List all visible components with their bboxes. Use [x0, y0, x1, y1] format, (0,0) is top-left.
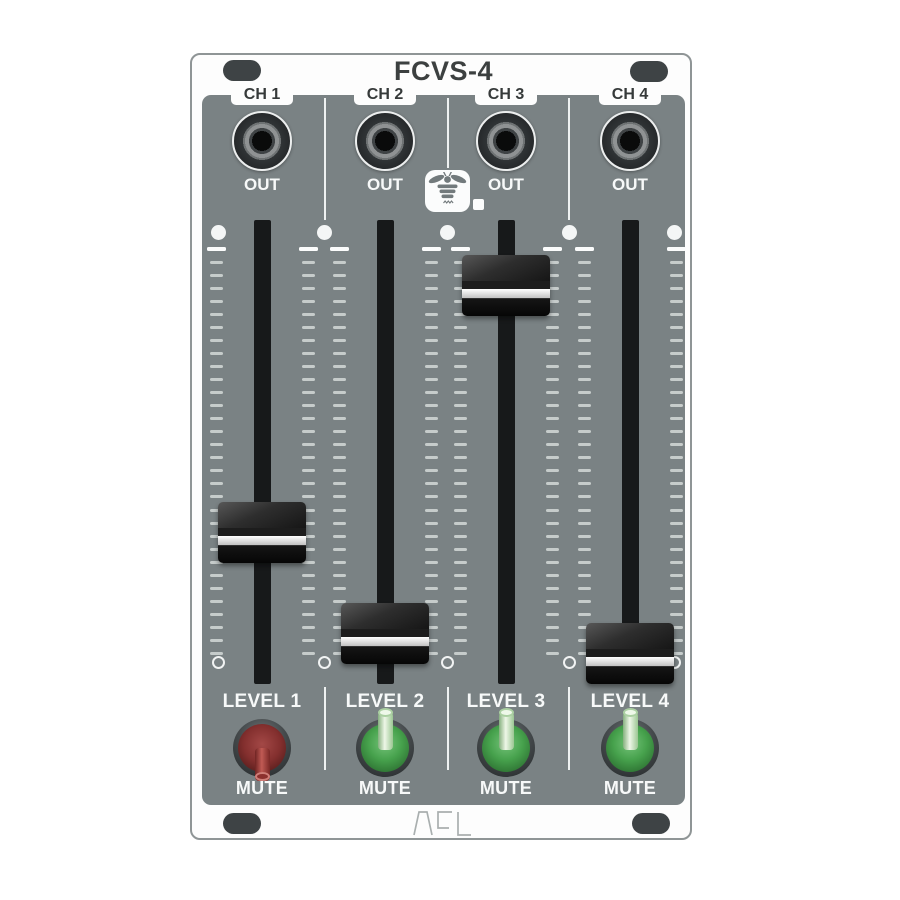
- mute-toggle-lever-tip: [378, 708, 393, 717]
- fader-scale-tick: [425, 391, 438, 394]
- fader-handle-cap-band: [218, 528, 306, 536]
- fader-scale-tick: [299, 247, 318, 251]
- fader-scale-tick: [578, 430, 591, 433]
- output-jack-label: OUT: [217, 175, 307, 195]
- fader-scale-tick: [670, 300, 683, 303]
- fader-scale-tick: [302, 313, 315, 316]
- fader-level-label: LEVEL 1: [202, 691, 322, 713]
- fader-scale-tick: [454, 339, 467, 342]
- fader-scale-tick: [210, 391, 223, 394]
- fader-handle-cap-band: [462, 281, 550, 289]
- fader-scale-tick: [425, 378, 438, 381]
- fader-scale-tick: [670, 326, 683, 329]
- fader-scale-tick: [454, 535, 467, 538]
- fader-scale-tick: [454, 352, 467, 355]
- fader-scale-tick: [670, 587, 683, 590]
- fader-scale-tick: [578, 339, 591, 342]
- fader-scale-tick: [333, 456, 346, 459]
- fader-scale-tick: [578, 404, 591, 407]
- fader-scale-tick: [454, 430, 467, 433]
- fader-scale-tick: [425, 587, 438, 590]
- fcvs-4-eurorack-module: FCVS-4 CH 1OUTLEVEL: [0, 0, 900, 900]
- fader-scale-tick: [454, 574, 467, 577]
- fader-scale-tick: [425, 469, 438, 472]
- fader-scale-tick: [302, 639, 315, 642]
- fader-scale-tick: [546, 391, 559, 394]
- fader-scale-tick: [546, 587, 559, 590]
- fader-scale-tick: [210, 639, 223, 642]
- fader-scale-tick: [670, 404, 683, 407]
- fader-scale-tick: [667, 247, 686, 251]
- fader-handle[interactable]: [462, 255, 550, 316]
- fader-scale-tick: [210, 574, 223, 577]
- fader-scale-tick: [425, 495, 438, 498]
- fader-scale-tick: [670, 352, 683, 355]
- fader-scale-tick: [302, 326, 315, 329]
- fader-scale-tick: [454, 404, 467, 407]
- fader-scale-tick: [333, 417, 346, 420]
- fader-scale-tick: [302, 352, 315, 355]
- mute-label: MUTE: [212, 778, 312, 799]
- output-jack-label: OUT: [461, 175, 551, 195]
- fader-scale-tick: [210, 626, 223, 629]
- fader-scale-tick: [425, 456, 438, 459]
- fader-scale-tick: [546, 574, 559, 577]
- fader-scale-tick: [210, 404, 223, 407]
- fader-scale-tick: [454, 456, 467, 459]
- fader-scale-tick: [425, 261, 438, 264]
- fader-scale-tick: [333, 352, 346, 355]
- fader-scale-tick: [670, 378, 683, 381]
- mute-toggle-lever-tip: [623, 708, 638, 717]
- fader-track[interactable]: [254, 220, 271, 684]
- mute-toggle-lever-tip: [499, 708, 514, 717]
- fader-scale-tick: [670, 430, 683, 433]
- mute-label: MUTE: [456, 778, 556, 799]
- fader-scale-tick: [333, 261, 346, 264]
- fader-scale-tick: [333, 300, 346, 303]
- fader-scale-tick: [333, 535, 346, 538]
- fader-scale-tick: [333, 561, 346, 564]
- fader-scale-tick: [302, 469, 315, 472]
- fader-scale-tick: [454, 391, 467, 394]
- fader-scale-tick: [575, 247, 594, 251]
- fader-scale-tick: [210, 587, 223, 590]
- fader-scale-tick: [425, 313, 438, 316]
- fader-scale-tick: [454, 548, 467, 551]
- fader-scale-tick: [425, 522, 438, 525]
- fader-scale-tick: [425, 535, 438, 538]
- channel-divider-line: [447, 98, 449, 168]
- fader-scale-tick: [333, 274, 346, 277]
- bee-logo-square-accent: [473, 199, 484, 210]
- acl-brand-logo: [412, 809, 472, 842]
- fader-scale-tick: [670, 339, 683, 342]
- fader-scale-tick: [543, 247, 562, 251]
- fader-scale-tick: [578, 274, 591, 277]
- fader-handle-cap-bot: [586, 666, 674, 684]
- fader-scale-tick: [302, 417, 315, 420]
- fader-scale-tick: [546, 443, 559, 446]
- mute-toggle-lever[interactable]: [623, 712, 638, 750]
- fader-scale-tick: [546, 456, 559, 459]
- fader-scale-tick: [546, 535, 559, 538]
- fader-scale-tick: [302, 587, 315, 590]
- fader-scale-tick: [454, 469, 467, 472]
- fader-scale-tick: [210, 300, 223, 303]
- fader-scale-tick: [425, 404, 438, 407]
- fader-scale-tick: [210, 482, 223, 485]
- fader-scale-tick: [546, 339, 559, 342]
- fader-scale-tick: [454, 509, 467, 512]
- fader-scale-tick: [302, 287, 315, 290]
- fader-scale-tick: [210, 600, 223, 603]
- output-jack[interactable]: [355, 111, 415, 171]
- fader-scale-tick: [578, 261, 591, 264]
- fader-scale-tick: [670, 274, 683, 277]
- fader-scale-tick: [425, 509, 438, 512]
- fader-scale-tick: [207, 247, 226, 251]
- fader-scale-tick: [578, 561, 591, 564]
- fader-scale-tick: [333, 430, 346, 433]
- fader-scale-tick: [578, 391, 591, 394]
- fader-scale-tick: [546, 600, 559, 603]
- fader-scale-tick: [425, 339, 438, 342]
- fader-scale-tick: [302, 430, 315, 433]
- fader-handle-cap-top: [341, 603, 429, 629]
- output-jack[interactable]: [232, 111, 292, 171]
- fader-scale-tick: [425, 430, 438, 433]
- fader-handle-cap-stripe: [341, 637, 429, 646]
- screw-slot-bottom-right: [632, 813, 670, 834]
- fader-scale-tick: [333, 313, 346, 316]
- output-jack[interactable]: [600, 111, 660, 171]
- fader-scale-tick: [546, 561, 559, 564]
- fader-scale-tick: [425, 274, 438, 277]
- channel-tab: CH 1: [231, 85, 293, 105]
- fader-scale-tick: [578, 326, 591, 329]
- output-jack-label: OUT: [585, 175, 675, 195]
- fader-scale-tick: [210, 352, 223, 355]
- fader-scale-tick: [302, 391, 315, 394]
- fader-scale-tick: [333, 287, 346, 290]
- fader-scale-tick: [333, 574, 346, 577]
- fader-scale-tick: [546, 509, 559, 512]
- fader-scale-tick: [546, 522, 559, 525]
- fader-scale-tick: [578, 522, 591, 525]
- output-jack-label: OUT: [340, 175, 430, 195]
- fader-handle-cap-stripe: [462, 289, 550, 298]
- fader-scale-tick: [670, 417, 683, 420]
- fader-scale-tick: [210, 287, 223, 290]
- fader-scale-tick: [454, 417, 467, 420]
- fader-scale-tick: [210, 313, 223, 316]
- channel-divider-line: [568, 98, 570, 220]
- fader-scale-tick: [333, 469, 346, 472]
- fader-handle-cap-top: [586, 623, 674, 649]
- fader-scale-tick: [333, 365, 346, 368]
- fader-scale-tick: [333, 378, 346, 381]
- fader-scale-tick: [546, 548, 559, 551]
- fader-scale-tick: [210, 365, 223, 368]
- fader-scale-tick: [210, 495, 223, 498]
- fader-scale-tick: [670, 287, 683, 290]
- fader-handle-cap-stripe: [586, 657, 674, 666]
- fader-scale-tick: [454, 652, 467, 655]
- fader-scale-tick: [302, 443, 315, 446]
- fader-scale-tick: [546, 430, 559, 433]
- fader-scale-tick: [578, 300, 591, 303]
- fader-scale-tick: [670, 600, 683, 603]
- fader-scale-tick: [425, 443, 438, 446]
- fader-scale-tick: [333, 443, 346, 446]
- fader-scale-tick: [454, 522, 467, 525]
- fader-scale-tick: [302, 261, 315, 264]
- fader-handle-cap-band: [341, 629, 429, 637]
- fader-scale-tick: [210, 261, 223, 264]
- channel-divider-line: [324, 98, 326, 220]
- fader-scale-tick: [670, 535, 683, 538]
- fader-scale-tick: [210, 378, 223, 381]
- fader-scale-tick: [670, 495, 683, 498]
- fader-scale-tick: [454, 443, 467, 446]
- fader-scale-tick: [425, 561, 438, 564]
- fader-scale-tick: [670, 509, 683, 512]
- fader-scale-tick: [302, 300, 315, 303]
- fader-scale-tick: [670, 313, 683, 316]
- fader-scale-tick: [333, 495, 346, 498]
- fader-scale-tick: [422, 247, 441, 251]
- white-dot-marker: [667, 225, 682, 240]
- white-dot-marker: [440, 225, 455, 240]
- mute-label: MUTE: [580, 778, 680, 799]
- fader-handle-cap-bot: [218, 545, 306, 563]
- fader-scale-tick: [454, 639, 467, 642]
- fader-scale-tick: [546, 352, 559, 355]
- fader-scale-tick: [578, 352, 591, 355]
- white-dot-marker: [317, 225, 332, 240]
- fader-scale-tick: [210, 339, 223, 342]
- fader-scale-tick: [578, 287, 591, 290]
- open-circle-marker: [212, 656, 225, 669]
- fader-scale-tick: [578, 509, 591, 512]
- fader-scale-tick: [210, 652, 223, 655]
- fader-scale-tick: [210, 274, 223, 277]
- fader-scale-tick: [670, 548, 683, 551]
- fader-scale-tick: [670, 522, 683, 525]
- fader-scale-tick: [546, 469, 559, 472]
- open-circle-marker: [441, 656, 454, 669]
- fader-handle-cap-bot: [341, 646, 429, 664]
- fader-scale-tick: [333, 339, 346, 342]
- fader-scale-tick: [454, 600, 467, 603]
- fader-scale-tick: [425, 300, 438, 303]
- fader-scale-tick: [578, 456, 591, 459]
- fader-scale-tick: [333, 587, 346, 590]
- fader-scale-tick: [425, 574, 438, 577]
- fader-scale-tick: [546, 652, 559, 655]
- fader-scale-tick: [578, 613, 591, 616]
- fader-scale-tick: [578, 313, 591, 316]
- fader-scale-tick: [302, 378, 315, 381]
- fader-scale-tick: [454, 626, 467, 629]
- fader-scale-tick: [302, 339, 315, 342]
- fader-scale-tick: [330, 247, 349, 251]
- fader-scale-tick: [578, 587, 591, 590]
- fader-scale-tick: [210, 326, 223, 329]
- fader-scale-tick: [670, 469, 683, 472]
- fader-scale-tick: [333, 509, 346, 512]
- fader-scale-tick: [454, 495, 467, 498]
- white-dot-marker: [562, 225, 577, 240]
- fader-scale-tick: [210, 469, 223, 472]
- fader-scale-tick: [670, 365, 683, 368]
- fader-scale-tick: [425, 326, 438, 329]
- fader-scale-tick: [546, 626, 559, 629]
- fader-handle-cap-bot: [462, 298, 550, 316]
- fader-scale-tick: [302, 404, 315, 407]
- fader-scale-tick: [670, 574, 683, 577]
- fader-scale-tick: [670, 456, 683, 459]
- fader-scale-tick: [578, 574, 591, 577]
- fader-handle-cap-band: [586, 649, 674, 657]
- fader-handle[interactable]: [586, 623, 674, 684]
- screw-slot-bottom-left: [223, 813, 261, 834]
- fader-scale-tick: [333, 548, 346, 551]
- mute-toggle-lever[interactable]: [499, 712, 514, 750]
- fader-scale-tick: [578, 535, 591, 538]
- fader-scale-tick: [425, 482, 438, 485]
- channel-tab: CH 2: [354, 85, 416, 105]
- fader-scale-tick: [333, 404, 346, 407]
- fader-scale-tick: [210, 613, 223, 616]
- fader-scale-tick: [454, 482, 467, 485]
- fader-scale-tick: [454, 561, 467, 564]
- output-jack[interactable]: [476, 111, 536, 171]
- fader-scale-tick: [546, 326, 559, 329]
- fader-track[interactable]: [622, 220, 639, 684]
- fader-scale-tick: [451, 247, 470, 251]
- fader-scale-tick: [425, 352, 438, 355]
- fader-scale-tick: [425, 548, 438, 551]
- fader-handle-cap-stripe: [218, 536, 306, 545]
- fader-scale-tick: [302, 456, 315, 459]
- fader-scale-tick: [670, 613, 683, 616]
- fader-handle[interactable]: [341, 603, 429, 664]
- fader-scale-tick: [425, 287, 438, 290]
- fader-scale-tick: [210, 417, 223, 420]
- fader-scale-tick: [210, 456, 223, 459]
- fader-handle-cap-top: [462, 255, 550, 281]
- fader-scale-tick: [546, 613, 559, 616]
- fader-scale-tick: [302, 482, 315, 485]
- fader-scale-tick: [578, 443, 591, 446]
- mute-toggle-lever[interactable]: [378, 712, 393, 750]
- fader-scale-tick: [302, 652, 315, 655]
- fader-scale-tick: [425, 417, 438, 420]
- fader-scale-tick: [302, 574, 315, 577]
- fader-scale-tick: [670, 443, 683, 446]
- fader-scale-tick: [454, 365, 467, 368]
- fader-scale-tick: [302, 365, 315, 368]
- fader-scale-tick: [546, 495, 559, 498]
- fader-scale-tick: [670, 261, 683, 264]
- fader-scale-tick: [578, 495, 591, 498]
- white-dot-marker: [211, 225, 226, 240]
- mute-label: MUTE: [335, 778, 435, 799]
- fader-scale-tick: [578, 600, 591, 603]
- fader-scale-tick: [670, 482, 683, 485]
- channel-tab: CH 3: [475, 85, 537, 105]
- fader-scale-tick: [546, 365, 559, 368]
- fader-scale-tick: [302, 626, 315, 629]
- fader-scale-tick: [578, 482, 591, 485]
- fader-scale-tick: [546, 639, 559, 642]
- fader-scale-tick: [210, 430, 223, 433]
- fader-scale-tick: [578, 417, 591, 420]
- fader-scale-tick: [546, 417, 559, 420]
- fader-scale-tick: [454, 587, 467, 590]
- fader-scale-tick: [302, 613, 315, 616]
- channel-tab: CH 4: [599, 85, 661, 105]
- fader-scale-tick: [302, 274, 315, 277]
- fader-scale-tick: [578, 365, 591, 368]
- fader-scale-tick: [578, 548, 591, 551]
- fader-scale-tick: [333, 391, 346, 394]
- fader-scale-tick: [210, 443, 223, 446]
- fader-scale-tick: [302, 495, 315, 498]
- fader-scale-tick: [546, 482, 559, 485]
- fader-scale-tick: [333, 522, 346, 525]
- fader-scale-tick: [333, 482, 346, 485]
- fader-scale-tick: [454, 613, 467, 616]
- fader-scale-tick: [454, 378, 467, 381]
- module-title: FCVS-4: [202, 56, 685, 87]
- open-circle-marker: [563, 656, 576, 669]
- fader-scale-tick: [425, 365, 438, 368]
- fader-scale-tick: [578, 378, 591, 381]
- fader-scale-tick: [302, 600, 315, 603]
- fader-handle[interactable]: [218, 502, 306, 563]
- fader-scale-tick: [578, 469, 591, 472]
- fader-scale-tick: [670, 561, 683, 564]
- fader-scale-tick: [546, 404, 559, 407]
- fader-scale-tick: [546, 378, 559, 381]
- fader-scale-tick: [333, 326, 346, 329]
- fader-scale-tick: [670, 391, 683, 394]
- fader-scale-tick: [425, 600, 438, 603]
- fader-scale-tick: [454, 326, 467, 329]
- fader-handle-cap-top: [218, 502, 306, 528]
- open-circle-marker: [318, 656, 331, 669]
